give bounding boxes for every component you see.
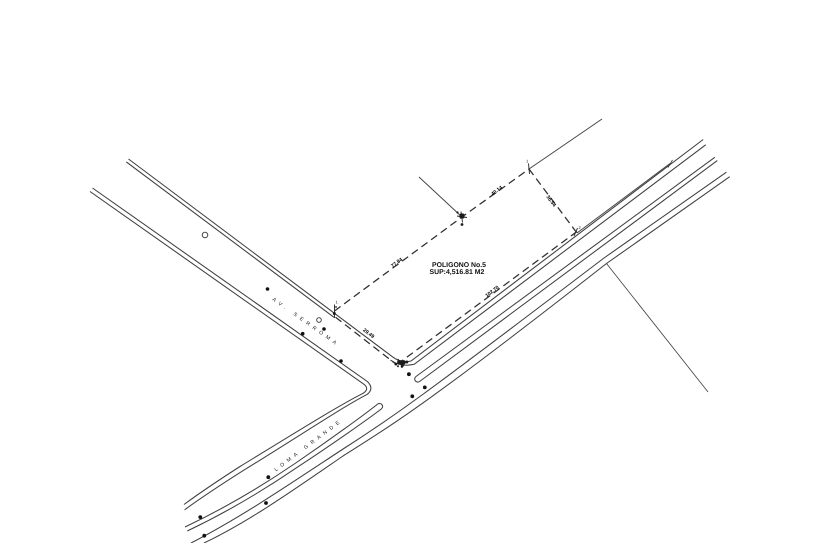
svg-text:SUP:4,516.81 M2: SUP:4,516.81 M2 [430,269,485,276]
svg-text:2: 2 [579,225,582,230]
svg-text:POLIGONO No.5: POLIGONO No.5 [432,262,486,269]
svg-text:102.70: 102.70 [484,285,500,299]
svg-text:AV. SERROMA: AV. SERROMA [271,297,341,349]
svg-text:40.14: 40.14 [490,185,504,198]
svg-text:77.84: 77.84 [390,257,404,270]
svg-text:1: 1 [526,159,529,164]
svg-text:36.54: 36.54 [544,194,557,208]
svg-text:1: 1 [336,300,339,305]
